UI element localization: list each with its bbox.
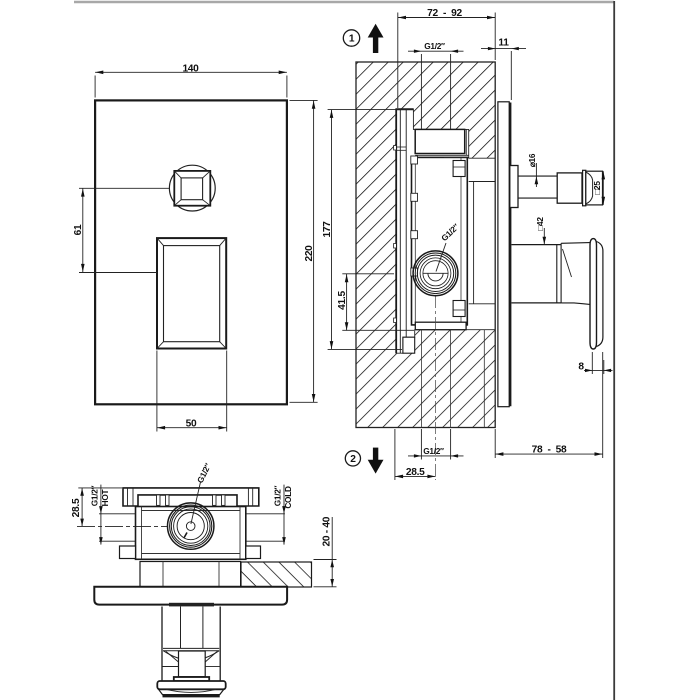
svg-text:61: 61 <box>73 224 84 235</box>
svg-text:11: 11 <box>498 37 509 48</box>
svg-text:20 - 40: 20 - 40 <box>322 516 333 546</box>
svg-text:G1/2″: G1/2″ <box>423 446 444 456</box>
svg-text:G1/2″: G1/2″ <box>424 41 445 51</box>
svg-text:8: 8 <box>578 361 584 372</box>
svg-text:28.5: 28.5 <box>406 467 425 478</box>
svg-text:G1/2″: G1/2″ <box>89 485 99 506</box>
svg-text:177: 177 <box>322 221 333 238</box>
svg-text:50: 50 <box>186 418 197 429</box>
svg-text:G1/2″: G1/2″ <box>272 485 282 506</box>
svg-text:⌀16: ⌀16 <box>527 153 537 167</box>
svg-text:□42: □42 <box>535 217 545 231</box>
svg-text:COLD: COLD <box>283 486 293 509</box>
svg-text:78 - 58: 78 - 58 <box>532 445 567 456</box>
svg-text:□25: □25 <box>592 181 602 195</box>
svg-text:28.5: 28.5 <box>71 498 82 517</box>
svg-text:72 - 92: 72 - 92 <box>427 8 462 19</box>
svg-text:140: 140 <box>182 63 199 74</box>
svg-text:HOT: HOT <box>100 489 110 506</box>
svg-text:41.5: 41.5 <box>337 291 348 310</box>
svg-text:2: 2 <box>350 454 356 465</box>
svg-text:220: 220 <box>304 245 315 262</box>
svg-text:1: 1 <box>349 34 355 45</box>
svg-text:G1/2″: G1/2″ <box>195 462 213 485</box>
